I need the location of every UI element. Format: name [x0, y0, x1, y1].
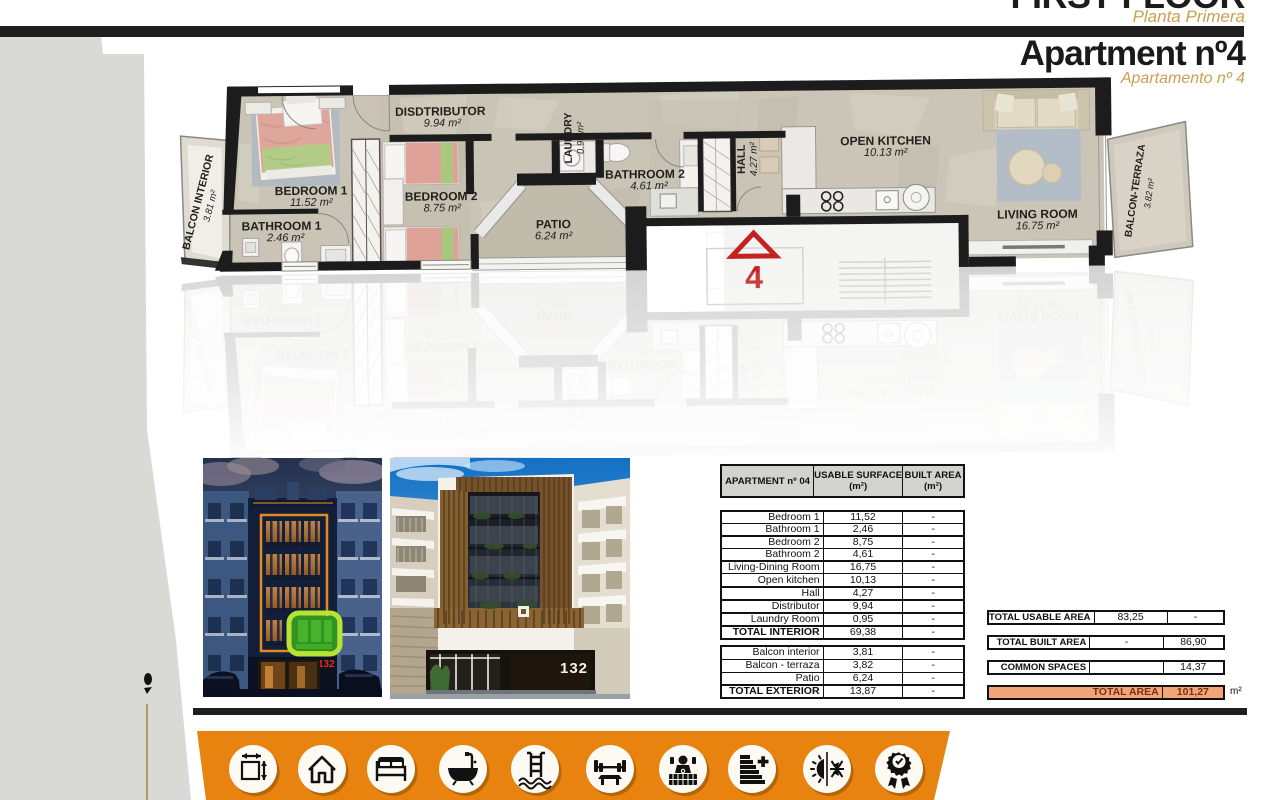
svg-text:8.75 m²: 8.75 m²	[424, 202, 462, 214]
svg-text:HALL: HALL	[736, 144, 748, 174]
svg-text:11.52 m²: 11.52 m²	[290, 197, 333, 209]
svg-text:6.24 m²: 6.24 m²	[535, 230, 573, 242]
svg-text:4.61 m²: 4.61 m²	[630, 180, 668, 192]
svg-text:2.46 m²: 2.46 m²	[266, 232, 305, 244]
svg-text:132: 132	[560, 660, 588, 677]
svg-text:132: 132	[318, 659, 335, 670]
svg-text:LAUNDRY: LAUNDRY	[562, 113, 575, 164]
svg-text:16.75 m²: 16.75 m²	[1016, 220, 1060, 232]
svg-text:9.94 m²: 9.94 m²	[424, 117, 462, 129]
svg-text:10.13 m²: 10.13 m²	[864, 147, 908, 159]
svg-text:4.27 m²: 4.27 m²	[749, 141, 760, 176]
svg-text:0.95 m²: 0.95 m²	[575, 121, 586, 154]
